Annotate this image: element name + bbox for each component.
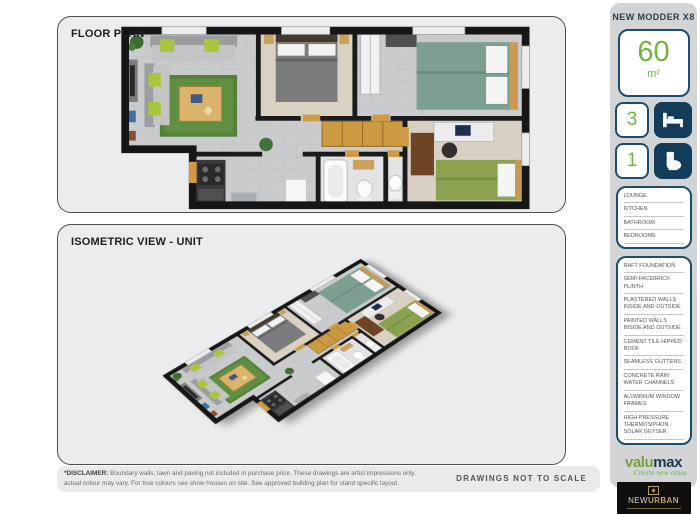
list-item: CEMENT TILE HIPPED ROOF [624,336,684,357]
floor-plan-panel: FLOOR PLAN [57,16,566,213]
bedroom-count: 3 [615,102,649,138]
isometric-rendering [138,248,458,463]
area-value: 60 [620,36,688,68]
bedrooms-stat: 3 [610,102,697,138]
disclaimer-text: *DISCLAIMER: Boundary walls, lawn and pa… [64,469,420,488]
floor-plan-rendering [138,248,458,463]
list-item: LOUNGE [624,190,684,203]
bathrooms-stat: 1 [610,143,697,179]
bathroom-count: 1 [615,143,649,179]
bedroom-1 [264,33,349,102]
area-unit: m² [620,68,688,80]
bed-icon [654,102,692,138]
list-item: SEMI-FACEBRICK PLINTH [624,273,684,294]
wc [389,175,403,198]
newurban-part1: NEW [628,496,648,505]
floor-plan-title: FLOOR PLAN [71,28,145,40]
newurban-part2: URBAN [648,496,679,505]
disclaimer-body: Boundary walls, lawn and paving not incl… [64,470,416,487]
scale-note: DRAWINGS NOT TO SCALE [456,474,587,483]
list-item: BEDROOMS [624,230,684,243]
valumax-part2: max [653,454,682,471]
list-item: SEAMLESS GUTTERS [624,356,684,369]
disclaimer-label: *DISCLAIMER: [64,470,108,477]
newurban-tagline-rule [627,508,681,510]
list-item: PLASTERED WALLS INSIDE AND OUTSIDE [624,294,684,315]
newurban-logo: NEWURBAN [617,482,691,514]
list-item: HIGH PRESSURE THERMOSIPHON SOLAR GEYSER [624,412,684,440]
newurban-emblem-icon [648,486,659,495]
rooms-list: LOUNGEKITCHENBATHROOMBEDROOMS [616,186,692,249]
footer-bar: *DISCLAIMER: Boundary walls, lawn and pa… [57,466,600,492]
list-item: ALUMINIUM WINDOW FRAMES [624,391,684,412]
list-item: RAFT FOUNDATION [624,260,684,273]
list-item: KITCHEN [624,203,684,216]
valumax-tagline: Create new cities [610,471,697,477]
list-item: PAINTED WALLS INSIDE AND OUTSIDE [624,315,684,336]
valumax-logo: valumax Create new cities [610,455,697,477]
specs-list: RAFT FOUNDATIONSEMI-FACEBRICK PLINTHPLAS… [616,256,692,445]
list-item: CONCRETE RAIN WATER CHANNELS [624,370,684,391]
area-badge: 60 m² [618,29,690,97]
floor-plan-holder [84,19,562,212]
newurban-wordmark: NEWURBAN [617,497,691,505]
list-item: BATHROOM [624,217,684,230]
floor-plan-rendering [84,19,562,212]
valumax-part1: valu [625,454,653,471]
spec-sidebar: NEW MODDER X8 60 m² 3 1 LOUNGEKITCHENBAT [610,3,697,488]
valumax-wordmark: valumax [610,455,697,470]
unit-title: NEW MODDER X8 [610,12,697,22]
isometric-view-panel: ISOMETRIC VIEW - UNIT [57,224,566,465]
isometric-view-title: ISOMETRIC VIEW - UNIT [71,236,203,248]
toilet-icon [654,143,692,179]
